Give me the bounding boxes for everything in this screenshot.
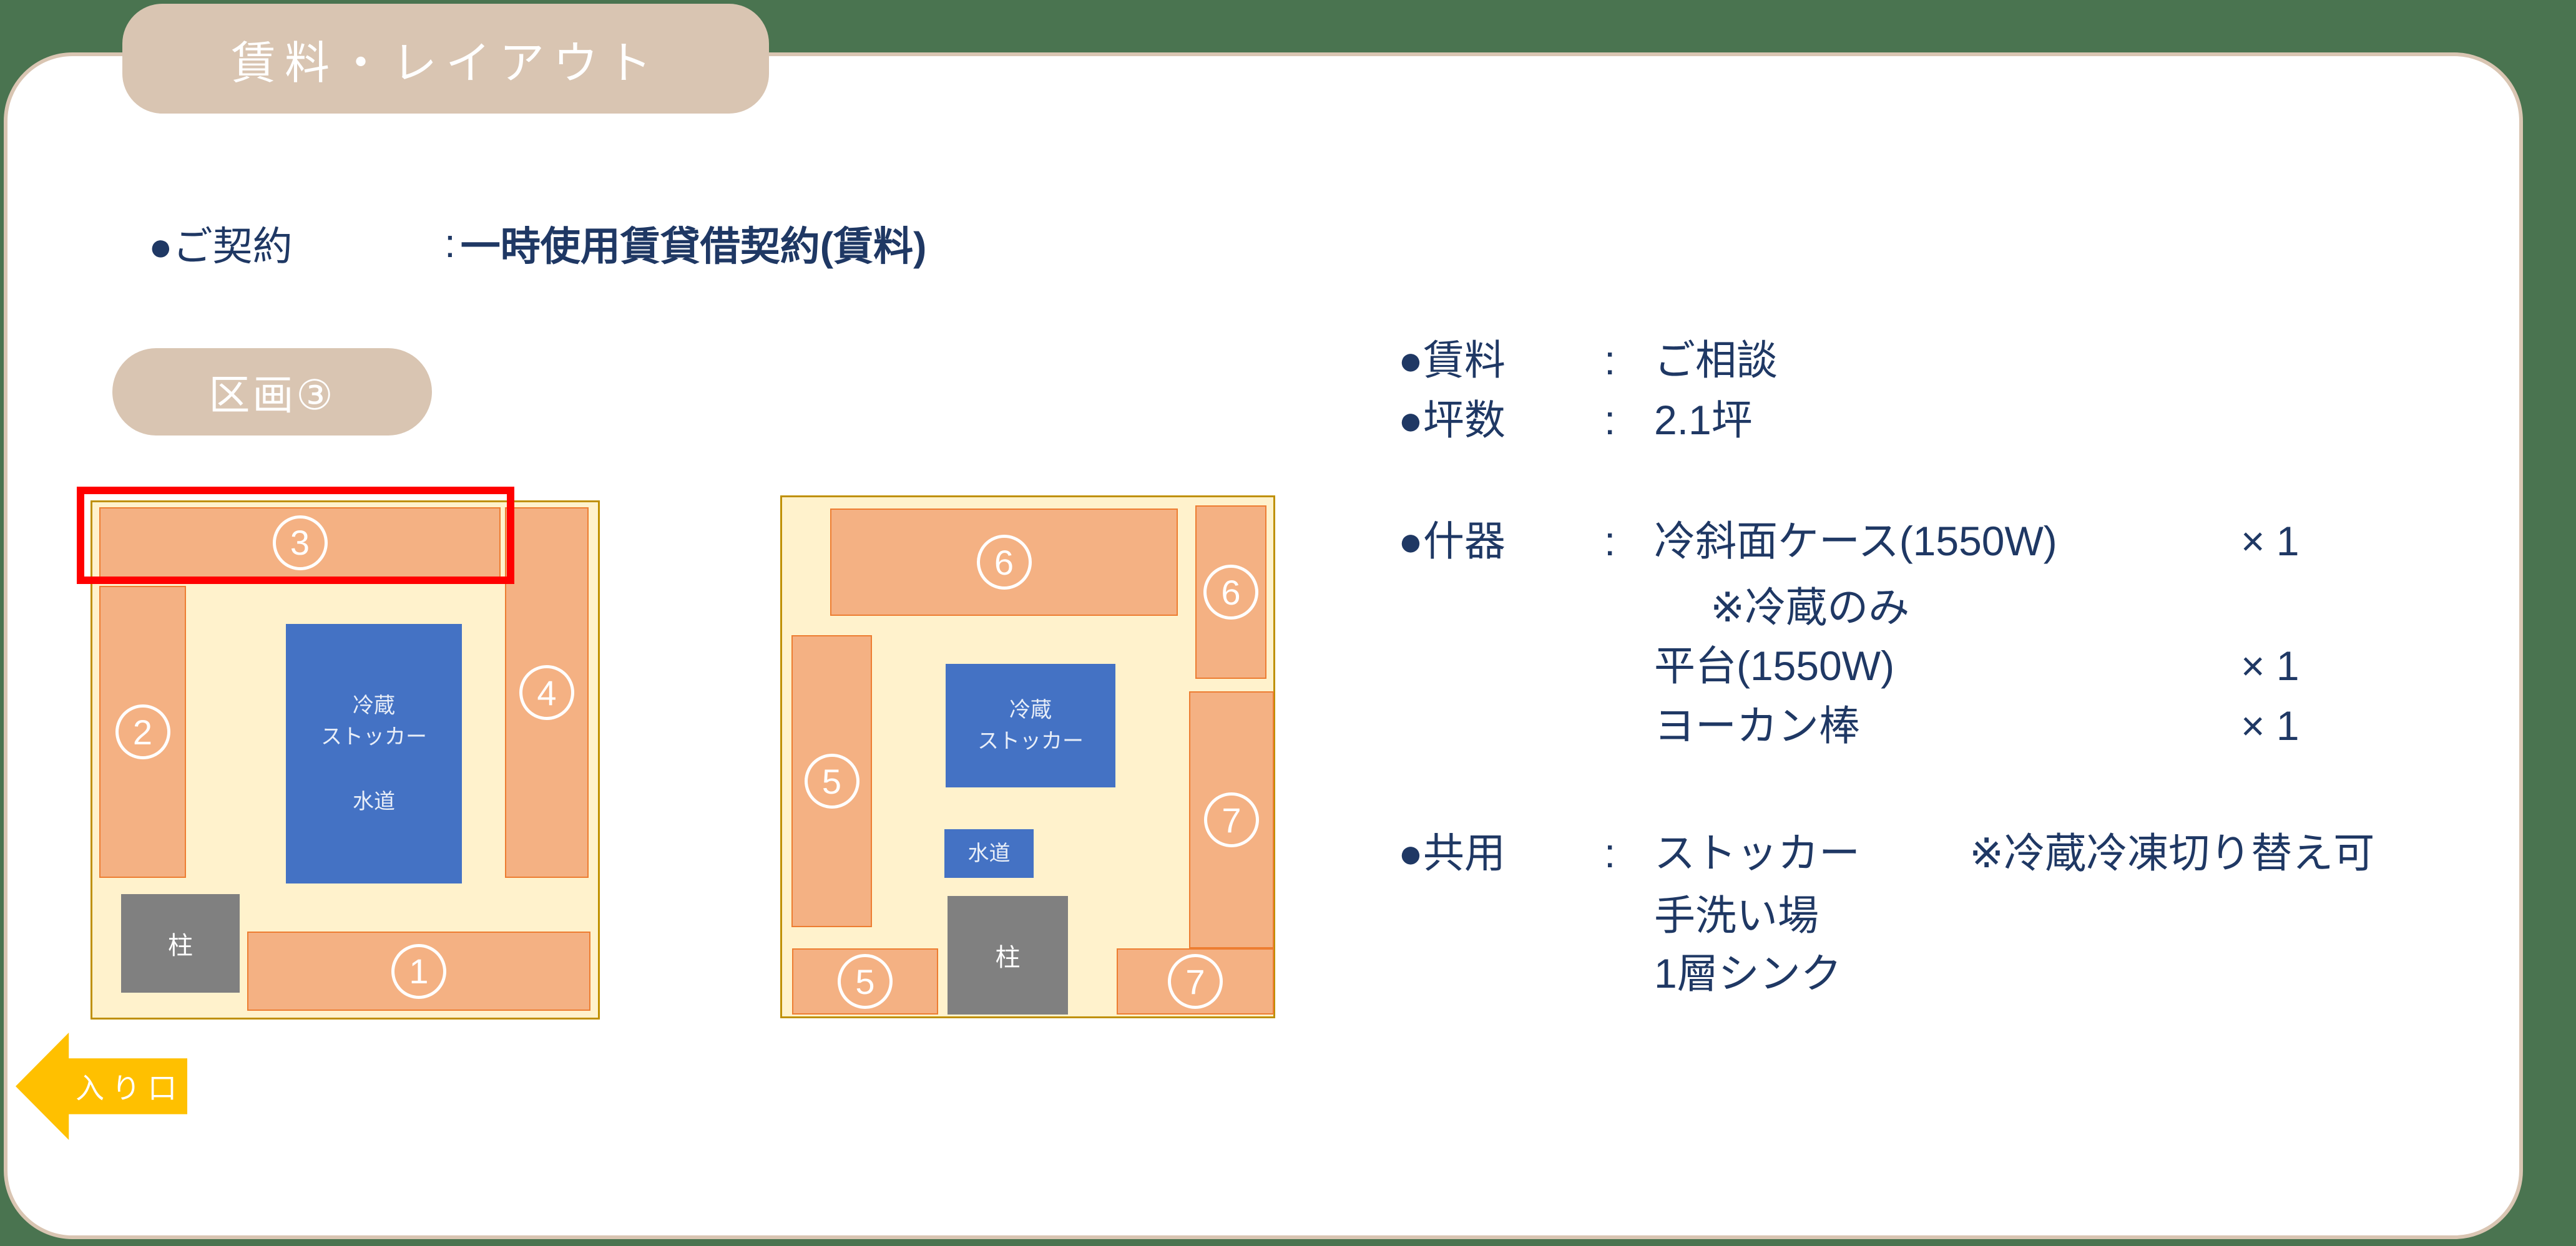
entrance-label: 入り口 (76, 1066, 184, 1107)
unit-box-7-side: 7 (1189, 691, 1274, 948)
unit-box-5-side: 5 (791, 635, 872, 927)
fixtures-item2-qty: × 1 (2241, 636, 2299, 696)
rent-row: ●賃料 : ご相談 (1398, 330, 2553, 390)
fixtures-label: ●什器 (1398, 511, 1506, 571)
rent-colon: : (1604, 330, 1615, 390)
shared-colon: : (1604, 823, 1615, 883)
unit-box-2: 2 (99, 586, 186, 878)
water-label: 水道 (353, 786, 395, 817)
water-box-right: 水道 (944, 829, 1034, 878)
fixtures-item3: ヨーカン棒 (1654, 696, 1860, 756)
pillar-box-right: 柱 (948, 896, 1068, 1015)
area-label: ●坪数 (1398, 390, 1506, 450)
water-label: 水道 (968, 838, 1011, 869)
stocker-label-line1: 冷蔵 (353, 690, 395, 721)
area-row: ●坪数 : 2.1坪 (1398, 390, 2553, 450)
unit-number-7-side: 7 (1204, 792, 1259, 847)
shared-item1: ストッカー (1654, 823, 1860, 883)
floorplan-right: 6 6 5 7 5 7 冷蔵 ストッカー 水道 柱 (780, 495, 1275, 1018)
shared-row-2: 手洗い場 (1398, 885, 2553, 945)
shared-row-3: 1層シンク (1398, 943, 2553, 1003)
fixtures-item1: 冷斜面ケース(1550W) (1654, 511, 2057, 571)
unit-number-5-side: 5 (805, 754, 859, 809)
stocker-water-box-left: 冷蔵 ストッカー 水道 (286, 624, 462, 883)
shared-row-1: ●共用 : ストッカー ※冷蔵冷凍切り替え可 (1398, 823, 2553, 883)
shared-label: ●共用 (1398, 823, 1506, 883)
pillar-box-left: 柱 (121, 894, 240, 993)
contract-line: ●ご契約 : 一時使用賃貸借契約(賃料) (149, 210, 926, 277)
pillar-label: 柱 (996, 937, 1021, 973)
unit-box-6-side: 6 (1195, 505, 1266, 679)
stocker-label-line2: ストッカー (977, 726, 1084, 757)
stocker-label-line1: 冷蔵 (1009, 694, 1052, 726)
unit-number-1: 1 (391, 944, 446, 999)
pillar-label: 柱 (168, 925, 193, 961)
section-badge: 区画③ (112, 348, 432, 436)
contract-colon: : (444, 220, 456, 266)
area-colon: : (1604, 390, 1615, 450)
unit-number-4: 4 (519, 665, 574, 720)
unit-number-2: 2 (115, 704, 170, 759)
unit-number-7-bottom: 7 (1168, 954, 1223, 1009)
unit-box-4: 4 (505, 507, 589, 878)
section-badge-label: 区画③ (208, 362, 335, 422)
contract-value: 一時使用賃貸借契約(賃料) (461, 215, 927, 272)
stocker-label-line2: ストッカー (321, 721, 427, 752)
unit3-highlight-box (77, 487, 514, 584)
contract-label: ●ご契約 (149, 215, 444, 272)
fixtures-note: ※冷蔵のみ (1710, 577, 1909, 637)
rent-label: ●賃料 (1398, 330, 1506, 390)
slide-page: { "title_tab": { "label": "賃料・レイアウト" }, … (0, 0, 2576, 1246)
shared-item3: 1層シンク (1654, 943, 1842, 1003)
unit-box-6-top: 6 (830, 509, 1178, 616)
unit-number-6-side: 6 (1203, 565, 1258, 620)
details-block: ●賃料 : ご相談 ●坪数 : 2.1坪 ●什器 : 冷斜面ケース(1550W)… (1398, 0, 2553, 1246)
area-value: 2.1坪 (1654, 390, 1753, 450)
fixtures-note-row: ※冷蔵のみ (1398, 577, 2553, 637)
rent-value: ご相談 (1654, 330, 1778, 390)
stocker-box-right: 冷蔵 ストッカー (946, 664, 1115, 787)
unit-number-5-bottom: 5 (838, 954, 893, 1009)
fixtures-colon: : (1604, 511, 1615, 571)
fixtures-item2: 平台(1550W) (1654, 636, 1894, 696)
unit-box-5-bottom: 5 (792, 948, 938, 1015)
fixtures-row-3: ヨーカン棒 × 1 (1398, 696, 2553, 756)
unit-number-6-top: 6 (977, 535, 1032, 590)
shared-note: ※冷蔵冷凍切り替え可 (1969, 823, 2374, 883)
page-title: 賃料・レイアウト (231, 26, 660, 92)
fixtures-item1-qty: × 1 (2241, 511, 2299, 571)
fixtures-row-1: ●什器 : 冷斜面ケース(1550W) × 1 (1398, 511, 2553, 571)
unit-box-1: 1 (247, 932, 590, 1011)
shared-item2: 手洗い場 (1654, 885, 1819, 945)
fixtures-row-2: 平台(1550W) × 1 (1398, 636, 2553, 696)
fixtures-item3-qty: × 1 (2241, 696, 2299, 756)
unit-box-7-bottom: 7 (1117, 948, 1274, 1015)
title-tab: 賃料・レイアウト (122, 4, 769, 114)
